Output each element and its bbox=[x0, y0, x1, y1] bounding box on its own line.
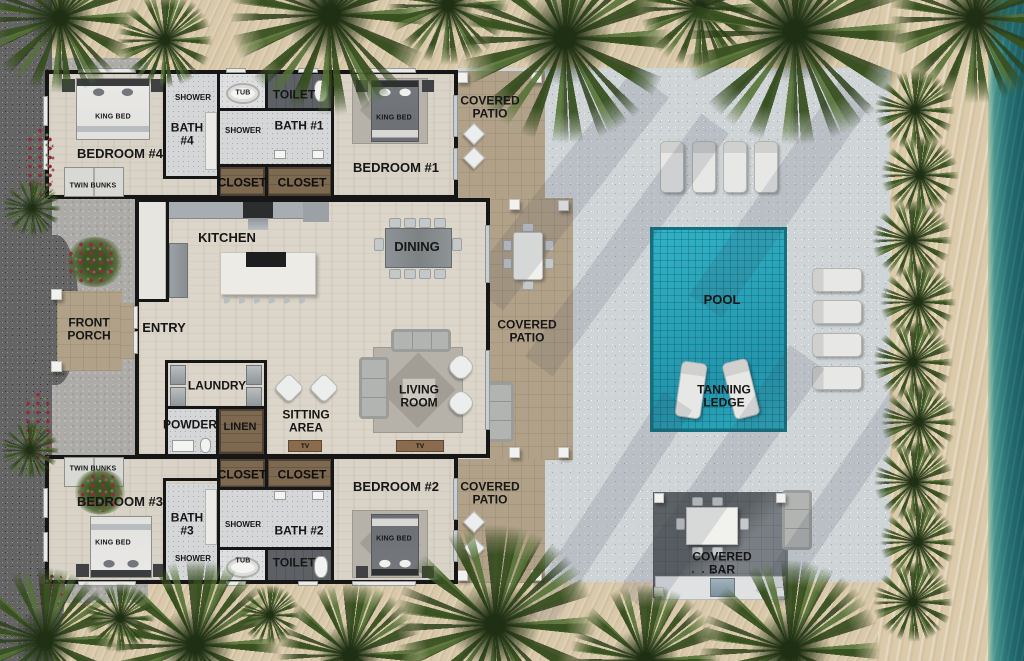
palm-tree bbox=[85, 583, 155, 653]
palm-shrub bbox=[3, 179, 61, 237]
palm-shrub bbox=[1, 421, 59, 479]
sun-lounger bbox=[812, 333, 862, 357]
wall bbox=[165, 360, 267, 363]
label-sitting-area: SITTING AREA bbox=[279, 408, 333, 433]
range-hood bbox=[248, 218, 268, 230]
window bbox=[43, 96, 48, 126]
room-label-closet: CLOSET bbox=[278, 469, 327, 482]
label-pool: POOL bbox=[704, 293, 741, 307]
floorplan-image: TV TV bbox=[0, 0, 1024, 661]
wall bbox=[166, 202, 169, 301]
toilet-fixture bbox=[314, 556, 328, 578]
tv-console: TV bbox=[396, 440, 444, 452]
label-shower: SHOWER bbox=[225, 127, 261, 135]
wall bbox=[163, 176, 220, 179]
laundry-unit bbox=[246, 387, 262, 407]
king-bed bbox=[371, 514, 419, 576]
label-covered-bar: COVERED BAR bbox=[689, 550, 755, 575]
dining-chair bbox=[404, 218, 416, 228]
bath4-vanity bbox=[205, 112, 217, 170]
entry-door bbox=[133, 331, 138, 354]
palm-tree bbox=[240, 585, 300, 645]
sun-lounger bbox=[723, 141, 747, 193]
label-shower: SHOWER bbox=[175, 94, 211, 102]
label-tub: TUB bbox=[236, 557, 251, 564]
slider-door bbox=[485, 350, 490, 430]
wall bbox=[218, 487, 332, 490]
patio-sofa bbox=[487, 382, 514, 442]
label-king-bed: KING BED bbox=[95, 539, 131, 546]
patio-column bbox=[509, 199, 520, 210]
room-label-toilet: TOILET bbox=[273, 557, 315, 570]
dining-chair bbox=[404, 269, 416, 279]
room-label-laundry: LAUNDRY bbox=[188, 380, 246, 393]
bar-column bbox=[654, 493, 664, 503]
living-sofa bbox=[359, 357, 389, 419]
dining-chair bbox=[434, 269, 446, 279]
dining-chair bbox=[389, 218, 401, 228]
living-sofa bbox=[391, 329, 451, 352]
window bbox=[43, 488, 48, 518]
room-label-bedroom3: BEDROOM #3 bbox=[77, 495, 163, 509]
wall bbox=[139, 299, 169, 302]
room-label-kitchen: KITCHEN bbox=[198, 231, 256, 245]
kitchen-cabinet bbox=[303, 202, 329, 222]
bath3-vanity bbox=[205, 489, 217, 545]
label-covered-patio: COVERED PATIO bbox=[496, 318, 558, 343]
dining-chair bbox=[389, 269, 401, 279]
label-front-porch: FRONT PORCH bbox=[63, 316, 115, 341]
sink bbox=[274, 150, 286, 159]
window bbox=[43, 532, 48, 562]
sun-lounger bbox=[812, 300, 862, 324]
sun-lounger bbox=[812, 268, 862, 292]
refrigerator bbox=[169, 243, 188, 298]
patio-door bbox=[453, 148, 458, 180]
sink bbox=[274, 491, 286, 500]
dining-chair bbox=[419, 218, 431, 228]
window bbox=[226, 68, 246, 73]
room-label-closet: CLOSET bbox=[218, 177, 267, 190]
patio-door bbox=[453, 478, 458, 520]
wall bbox=[218, 547, 332, 550]
dining-chair bbox=[374, 238, 384, 251]
washer bbox=[170, 365, 186, 385]
porch-column bbox=[51, 361, 62, 372]
label-covered-patio: COVERED PATIO bbox=[459, 480, 521, 505]
room-label-linen: LINEN bbox=[224, 422, 257, 434]
label-king-bed: KING BED bbox=[376, 114, 412, 121]
porch-column bbox=[51, 289, 62, 300]
nightstand bbox=[356, 566, 368, 578]
room-label-powder: POWDER bbox=[163, 419, 217, 432]
room-label-bath4: BATH #4 bbox=[168, 121, 206, 146]
toilet-fixture bbox=[200, 438, 211, 453]
entry-door bbox=[133, 306, 138, 329]
tv-label: TV bbox=[301, 443, 309, 450]
label-king-bed: KING BED bbox=[95, 113, 131, 120]
patio-dining-chair bbox=[545, 258, 554, 269]
room-label-bedroom1: BEDROOM #1 bbox=[353, 161, 439, 175]
sink bbox=[312, 491, 324, 500]
bar-column bbox=[776, 493, 786, 503]
wall bbox=[265, 549, 268, 580]
room-label-dining: DINING bbox=[394, 240, 440, 254]
room-label-toilet: TOILET bbox=[273, 89, 315, 102]
room-label-entry: ENTRY bbox=[142, 321, 186, 335]
label-king-bed: KING BED bbox=[376, 535, 412, 542]
slider-door bbox=[485, 225, 490, 283]
label-shower: SHOWER bbox=[225, 521, 261, 529]
label-tanning-ledge: TANNING LEDGE bbox=[692, 383, 756, 408]
dining-chair bbox=[419, 269, 431, 279]
label-covered-patio: COVERED PATIO bbox=[459, 94, 521, 119]
dryer bbox=[170, 387, 186, 407]
flower-bed bbox=[66, 240, 118, 284]
label-tub: TUB bbox=[236, 89, 251, 96]
sink bbox=[312, 150, 324, 159]
pantry-cabinets bbox=[139, 202, 166, 301]
room-label-bath3: BATH #3 bbox=[168, 511, 206, 536]
nightstand bbox=[422, 80, 434, 92]
label-twin-bunks: TWIN BUNKS bbox=[70, 465, 117, 472]
room-label-bath1: BATH #1 bbox=[274, 120, 323, 133]
tv-label: TV bbox=[416, 443, 424, 450]
room-label-closet: CLOSET bbox=[218, 469, 267, 482]
patio-column bbox=[509, 447, 520, 458]
palm-tree bbox=[873, 562, 953, 642]
dining-chair bbox=[434, 218, 446, 228]
wall bbox=[331, 459, 334, 580]
patio-door bbox=[453, 95, 458, 137]
patio-column bbox=[558, 447, 569, 458]
label-twin-bunks: TWIN BUNKS bbox=[70, 182, 117, 189]
window bbox=[298, 581, 318, 586]
bar-chair bbox=[740, 518, 749, 530]
room-label-bedroom4: BEDROOM #4 bbox=[77, 147, 163, 161]
king-bed bbox=[90, 516, 152, 578]
bar-stools bbox=[224, 296, 314, 305]
room-label-bath2: BATH #2 bbox=[274, 525, 323, 538]
room-label-bedroom2: BEDROOM #2 bbox=[353, 480, 439, 494]
tv-console: TV bbox=[288, 440, 322, 452]
dining-chair bbox=[452, 238, 462, 251]
powder-vanity bbox=[172, 440, 194, 452]
room-label-living-room: LIVING ROOM bbox=[392, 383, 446, 408]
laundry-unit bbox=[246, 365, 262, 385]
wall bbox=[163, 74, 166, 178]
label-shower: SHOWER bbox=[175, 555, 211, 563]
wall bbox=[218, 164, 332, 167]
room-label-closet: CLOSET bbox=[278, 177, 327, 190]
wall bbox=[163, 478, 220, 481]
island-cooktop bbox=[246, 252, 286, 267]
stove bbox=[243, 202, 273, 218]
